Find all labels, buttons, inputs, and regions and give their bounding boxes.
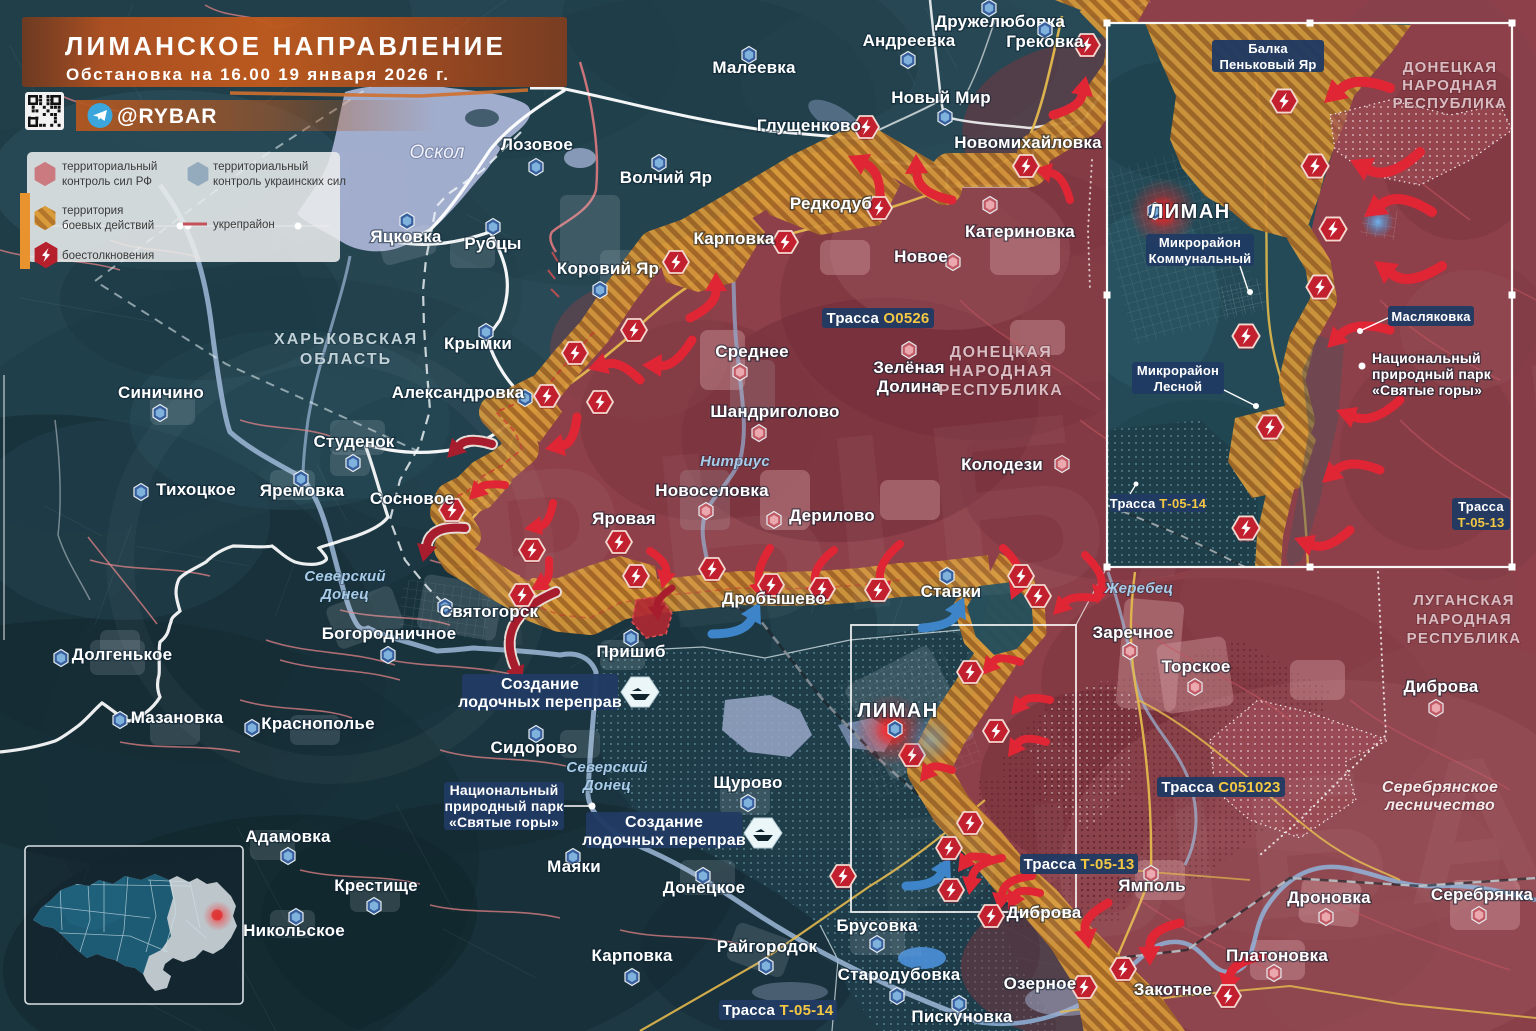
svg-text:Трасса: Трасса [1458,499,1504,514]
svg-text:Стародубовка: Стародубовка [838,965,961,984]
svg-text:лодочных переправ: лодочных переправ [458,694,622,711]
svg-text:Богородничное: Богородничное [322,624,456,643]
svg-text:Платоновка: Платоновка [1226,946,1328,965]
svg-text:Краснополье: Краснополье [261,714,374,733]
svg-text:Долгенькое: Долгенькое [72,645,172,664]
svg-text:Новое: Новое [894,247,948,266]
svg-text:Коммунальный: Коммунальный [1149,251,1252,266]
svg-text:Карповка: Карповка [591,946,672,965]
svg-text:«Святые горы»: «Святые горы» [1372,382,1482,398]
svg-text:Брусовка: Брусовка [836,916,918,935]
svg-text:Обстановка на 16.00 19 января: Обстановка на 16.00 19 января 2026 г. [66,65,450,84]
svg-text:Андреевка: Андреевка [863,31,956,50]
svg-text:Трасса Т-05-14: Трасса Т-05-14 [1110,496,1207,511]
svg-text:Донец: Донец [581,777,631,794]
svg-text:НАРОДНАЯ: НАРОДНАЯ [949,363,1053,380]
svg-text:ХАРЬКОВСКАЯ: ХАРЬКОВСКАЯ [274,331,418,348]
svg-text:Александровка: Александровка [392,383,525,402]
svg-text:РЕСПУБЛИКА: РЕСПУБЛИКА [1407,630,1522,647]
svg-text:Яцковка: Яцковка [370,227,441,246]
svg-text:Долина: Долина [877,377,942,396]
svg-text:Катериновка: Катериновка [965,222,1075,241]
svg-text:Новомихайловка: Новомихайловка [954,133,1102,152]
svg-text:природный парк: природный парк [445,798,565,814]
svg-text:Балка: Балка [1248,41,1288,56]
svg-text:Маяки: Маяки [547,857,601,876]
svg-text:территория: территория [62,205,123,217]
svg-text:Национальный: Национальный [1372,350,1481,366]
svg-text:Крымки: Крымки [444,334,512,353]
svg-text:Ставки: Ставки [921,582,982,601]
svg-text:Новоселовка: Новоселовка [655,481,769,500]
svg-text:территориальный: территориальный [213,161,308,173]
svg-text:боевых действий: боевых действий [62,220,154,232]
svg-text:контроль сил РФ: контроль сил РФ [62,176,152,188]
svg-text:Оскол: Оскол [409,142,464,163]
svg-text:Редкодуб: Редкодуб [790,194,872,213]
svg-text:Национальный: Национальный [450,782,559,798]
svg-text:Адамовка: Адамовка [245,827,331,846]
svg-text:Яремовка: Яремовка [260,481,345,500]
svg-text:Пискуновка: Пискуновка [911,1007,1012,1026]
svg-text:Трасса Т-05-14: Трасса Т-05-14 [723,1002,834,1019]
svg-text:ОБЛАСТЬ: ОБЛАСТЬ [300,351,392,368]
svg-text:Нитриус: Нитриус [700,453,770,470]
svg-text:Донецкое: Донецкое [663,878,746,897]
svg-text:Серебрянка: Серебрянка [1431,885,1534,904]
svg-text:Микрорайон: Микрорайон [1159,235,1241,250]
svg-text:Мазановка: Мазановка [131,708,224,727]
svg-text:Торское: Торское [1161,657,1230,676]
svg-text:Сосновое: Сосновое [370,489,454,508]
svg-text:НАРОДНАЯ: НАРОДНАЯ [1402,77,1498,94]
svg-text:Новый Мир: Новый Мир [891,88,991,107]
svg-text:Донец: Донец [319,586,369,603]
svg-text:контроль украинских сил: контроль украинских сил [213,176,346,188]
svg-text:«Святые горы»: «Святые горы» [449,814,559,830]
svg-text:РЕСПУБЛИКА: РЕСПУБЛИКА [939,382,1064,399]
svg-text:Карповка: Карповка [693,229,774,248]
svg-text:Ямполь: Ямполь [1118,876,1185,895]
svg-text:ДОНЕЦКАЯ: ДОНЕЦКАЯ [1403,59,1498,76]
svg-text:Колодези: Колодези [961,455,1043,474]
svg-text:НАРОДНАЯ: НАРОДНАЯ [1416,611,1512,628]
svg-text:Пеньковый Яр: Пеньковый Яр [1219,57,1316,72]
svg-text:Шандриголово: Шандриголово [710,402,839,421]
svg-text:ДОНЕЦКАЯ: ДОНЕЦКАЯ [950,344,1053,361]
svg-text:Масляковка: Масляковка [1391,309,1471,324]
svg-text:Никольское: Никольское [243,921,345,940]
svg-text:Северский: Северский [566,759,647,776]
svg-text:Райгородок: Райгородок [717,937,818,956]
svg-text:Создание: Создание [625,814,703,831]
svg-text:@RYBAR: @RYBAR [117,105,217,128]
svg-text:Малеевка: Малеевка [712,58,796,77]
svg-text:Трасса С051023: Трасса С051023 [1161,779,1280,796]
svg-text:Заречное: Заречное [1092,623,1173,642]
svg-text:укрепрайон: укрепрайон [213,219,275,231]
svg-text:Трасса Т-05-13: Трасса Т-05-13 [1024,856,1135,873]
svg-text:Микрорайон: Микрорайон [1137,363,1219,378]
svg-text:Зелёная: Зелёная [873,358,944,377]
svg-text:ЛИМАН: ЛИМАН [1149,201,1230,223]
svg-text:территориальный: территориальный [62,161,157,173]
svg-text:боестолкновения: боестолкновения [62,250,154,262]
svg-text:Лесной: Лесной [1154,379,1202,394]
svg-text:лодочных переправ: лодочных переправ [582,832,746,849]
svg-text:Глущенково: Глущенково [757,116,861,135]
svg-text:Волчий Яр: Волчий Яр [620,168,713,187]
svg-text:Грековка: Грековка [1006,32,1084,51]
svg-text:Диброва: Диброва [1007,903,1082,922]
svg-text:Тихоцкое: Тихоцкое [156,480,236,499]
svg-text:РЕСПУБЛИКА: РЕСПУБЛИКА [1393,95,1508,112]
svg-text:Студенок: Студенок [313,432,394,451]
svg-text:Сидорово: Сидорово [491,738,578,757]
svg-text:ЛИМАНСКОЕ НАПРАВЛЕНИЕ: ЛИМАНСКОЕ НАПРАВЛЕНИЕ [65,31,506,61]
svg-text:ЛИМАН: ЛИМАН [857,700,938,722]
svg-text:Трасса О0526: Трасса О0526 [827,310,930,327]
svg-text:Яровая: Яровая [592,509,656,528]
svg-text:Жеребец: Жеребец [1104,580,1173,597]
svg-text:Диброва: Диброва [1404,677,1479,696]
svg-text:Коровий Яр: Коровий Яр [557,259,659,278]
svg-text:Озерное: Озерное [1004,974,1077,993]
svg-text:Дерилово: Дерилово [789,506,875,525]
svg-text:Святогорск: Святогорск [440,602,539,621]
svg-text:Т-05-13: Т-05-13 [1458,515,1505,530]
svg-text:лесничество: лесничество [1384,797,1495,814]
svg-text:Синичино: Синичино [118,383,204,402]
svg-text:Щурово: Щурово [713,773,782,792]
svg-text:Среднее: Среднее [715,342,788,361]
svg-text:Крестище: Крестище [334,876,418,895]
svg-text:Пришиб: Пришиб [596,642,665,661]
svg-text:Лозовое: Лозовое [501,135,573,154]
svg-text:Рубцы: Рубцы [464,234,521,253]
svg-text:Дроновка: Дроновка [1287,888,1371,907]
svg-text:ЛУГАНСКАЯ: ЛУГАНСКАЯ [1413,592,1514,609]
svg-text:Северский: Северский [304,568,385,585]
svg-text:Серебрянское: Серебрянское [1382,779,1498,796]
svg-text:Закотное: Закотное [1134,980,1212,999]
svg-text:природный парк: природный парк [1372,366,1492,382]
svg-text:Создание: Создание [501,676,579,693]
svg-text:Дробышево: Дробышево [722,589,826,608]
